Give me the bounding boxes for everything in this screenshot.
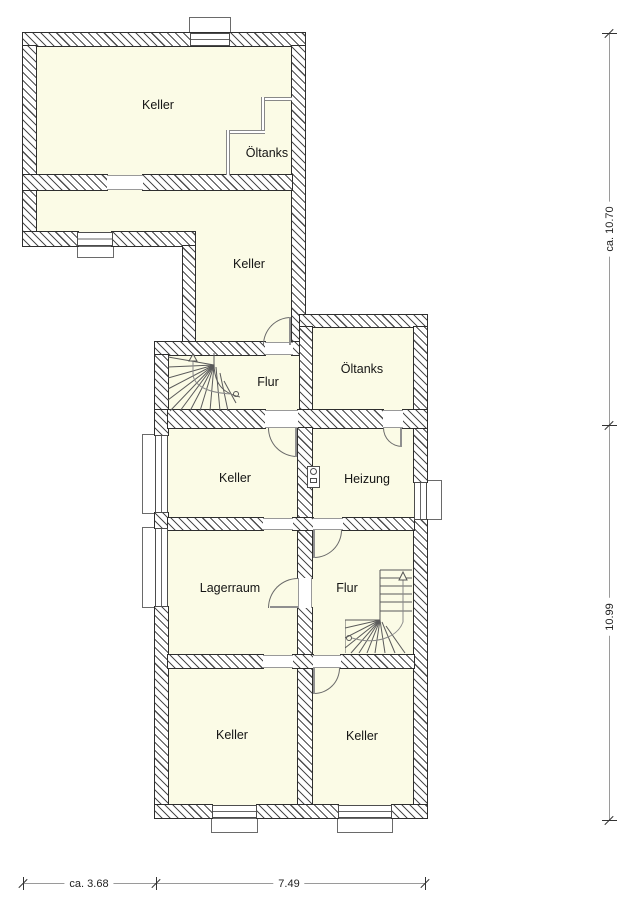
wall-left-lower-b bbox=[155, 513, 168, 528]
window-bottom-2 bbox=[338, 805, 392, 818]
window-top bbox=[190, 33, 230, 46]
room-label-keller-bl: Keller bbox=[216, 728, 248, 742]
room-label-flur-upper: Flur bbox=[257, 375, 279, 389]
wall-right-upper bbox=[292, 46, 305, 355]
dim-label-bottom-mid: 7.49 bbox=[273, 878, 304, 890]
room-label-lagerraum: Lagerraum bbox=[200, 581, 260, 595]
wall-h2-b bbox=[293, 655, 313, 668]
wall-top bbox=[23, 33, 305, 46]
partition-oeltanks-v1 bbox=[261, 97, 265, 134]
light-well-bottom-1 bbox=[211, 818, 258, 833]
door-leaf-flur-keller-br bbox=[313, 668, 315, 694]
wall-center-b bbox=[298, 608, 312, 805]
door-leaf-heizung-flur bbox=[313, 530, 315, 558]
doorway-flur-lagerraum bbox=[298, 578, 312, 608]
boiler-circle-icon bbox=[310, 468, 317, 475]
light-well-left-2 bbox=[142, 527, 156, 608]
wall-left-lower-a bbox=[155, 410, 168, 435]
opening-lagerraum-keller bbox=[263, 655, 293, 668]
partition-oeltanks-h2 bbox=[226, 130, 265, 134]
room-label-oeltanks-lower: Öltanks bbox=[341, 362, 383, 376]
door-leaf-oeltanks-heizung bbox=[400, 428, 402, 447]
wall-oeltanks-left bbox=[300, 327, 312, 423]
wall-hall-left bbox=[183, 246, 195, 342]
dim-label-right-top: ca. 10.70 bbox=[604, 201, 616, 256]
wall-flur-left bbox=[155, 355, 168, 410]
partition-oeltanks-h1 bbox=[261, 97, 292, 101]
light-well-left-1 bbox=[142, 434, 156, 514]
room-label-keller-mid: Keller bbox=[219, 471, 251, 485]
wall-midband-b bbox=[298, 410, 383, 428]
wall-h1-c bbox=[343, 518, 414, 530]
room-label-keller-br: Keller bbox=[346, 729, 378, 743]
doorway-heizung-flur bbox=[313, 518, 343, 530]
boiler-rect-icon bbox=[310, 478, 317, 483]
light-well-top bbox=[189, 17, 231, 33]
wall-left-lower-c bbox=[155, 607, 168, 805]
wall-midband-c bbox=[403, 410, 427, 428]
wall-strip-bottom-b bbox=[112, 232, 195, 246]
wall-bottom-b bbox=[257, 805, 338, 818]
floor-plan: Keller Öltanks Keller Flur Öltanks Kelle… bbox=[0, 0, 624, 900]
wall-bottom-a bbox=[155, 805, 212, 818]
wall-int-band-a bbox=[23, 175, 107, 190]
light-well-strip bbox=[77, 246, 114, 258]
window-left-2 bbox=[155, 528, 168, 607]
wall-h1-a bbox=[168, 518, 263, 530]
wall-h2-c bbox=[341, 655, 414, 668]
door-leaf-flur-lagerraum bbox=[270, 606, 298, 608]
room-label-oeltanks-upper: Öltanks bbox=[246, 146, 288, 160]
staircase-upper bbox=[168, 353, 240, 412]
dim-label-right-bottom: 10.99 bbox=[604, 598, 616, 636]
wall-center-a bbox=[298, 428, 312, 578]
room-label-flur-lower: Flur bbox=[336, 581, 358, 595]
wall-h2-a bbox=[168, 655, 263, 668]
doorway-flur-keller-br bbox=[313, 655, 341, 668]
door-leaf-hall-flur bbox=[289, 317, 291, 345]
partition-oeltanks-v2 bbox=[226, 130, 230, 175]
doorway-oeltanks-heizung bbox=[383, 410, 403, 428]
window-bottom-1 bbox=[212, 805, 257, 818]
wall-oeltanks-top bbox=[300, 315, 427, 327]
wall-left-upper bbox=[23, 46, 36, 246]
dim-label-bottom-left: ca. 3.68 bbox=[64, 878, 113, 890]
room-label-heizung: Heizung bbox=[344, 472, 390, 486]
window-right bbox=[414, 482, 427, 520]
wall-right-b bbox=[414, 520, 427, 805]
light-well-bottom-2 bbox=[337, 818, 393, 833]
doorway-flur-keller bbox=[265, 410, 298, 428]
window-strip bbox=[77, 232, 113, 246]
room-label-keller-main: Keller bbox=[142, 98, 174, 112]
wall-bottom-c bbox=[392, 805, 427, 818]
wall-strip-bottom-a bbox=[23, 232, 78, 246]
wall-right-a bbox=[414, 327, 427, 482]
door-leaf-flur-keller bbox=[295, 428, 297, 457]
floor-strip bbox=[36, 190, 292, 232]
wall-int-band-b bbox=[143, 175, 292, 190]
opening-keller-strip bbox=[107, 175, 143, 190]
wall-midband-a bbox=[168, 410, 265, 428]
opening-keller-lagerraum bbox=[263, 518, 293, 530]
wall-h1-b bbox=[293, 518, 313, 530]
window-left-1 bbox=[155, 435, 168, 513]
room-label-keller-hall: Keller bbox=[233, 257, 265, 271]
